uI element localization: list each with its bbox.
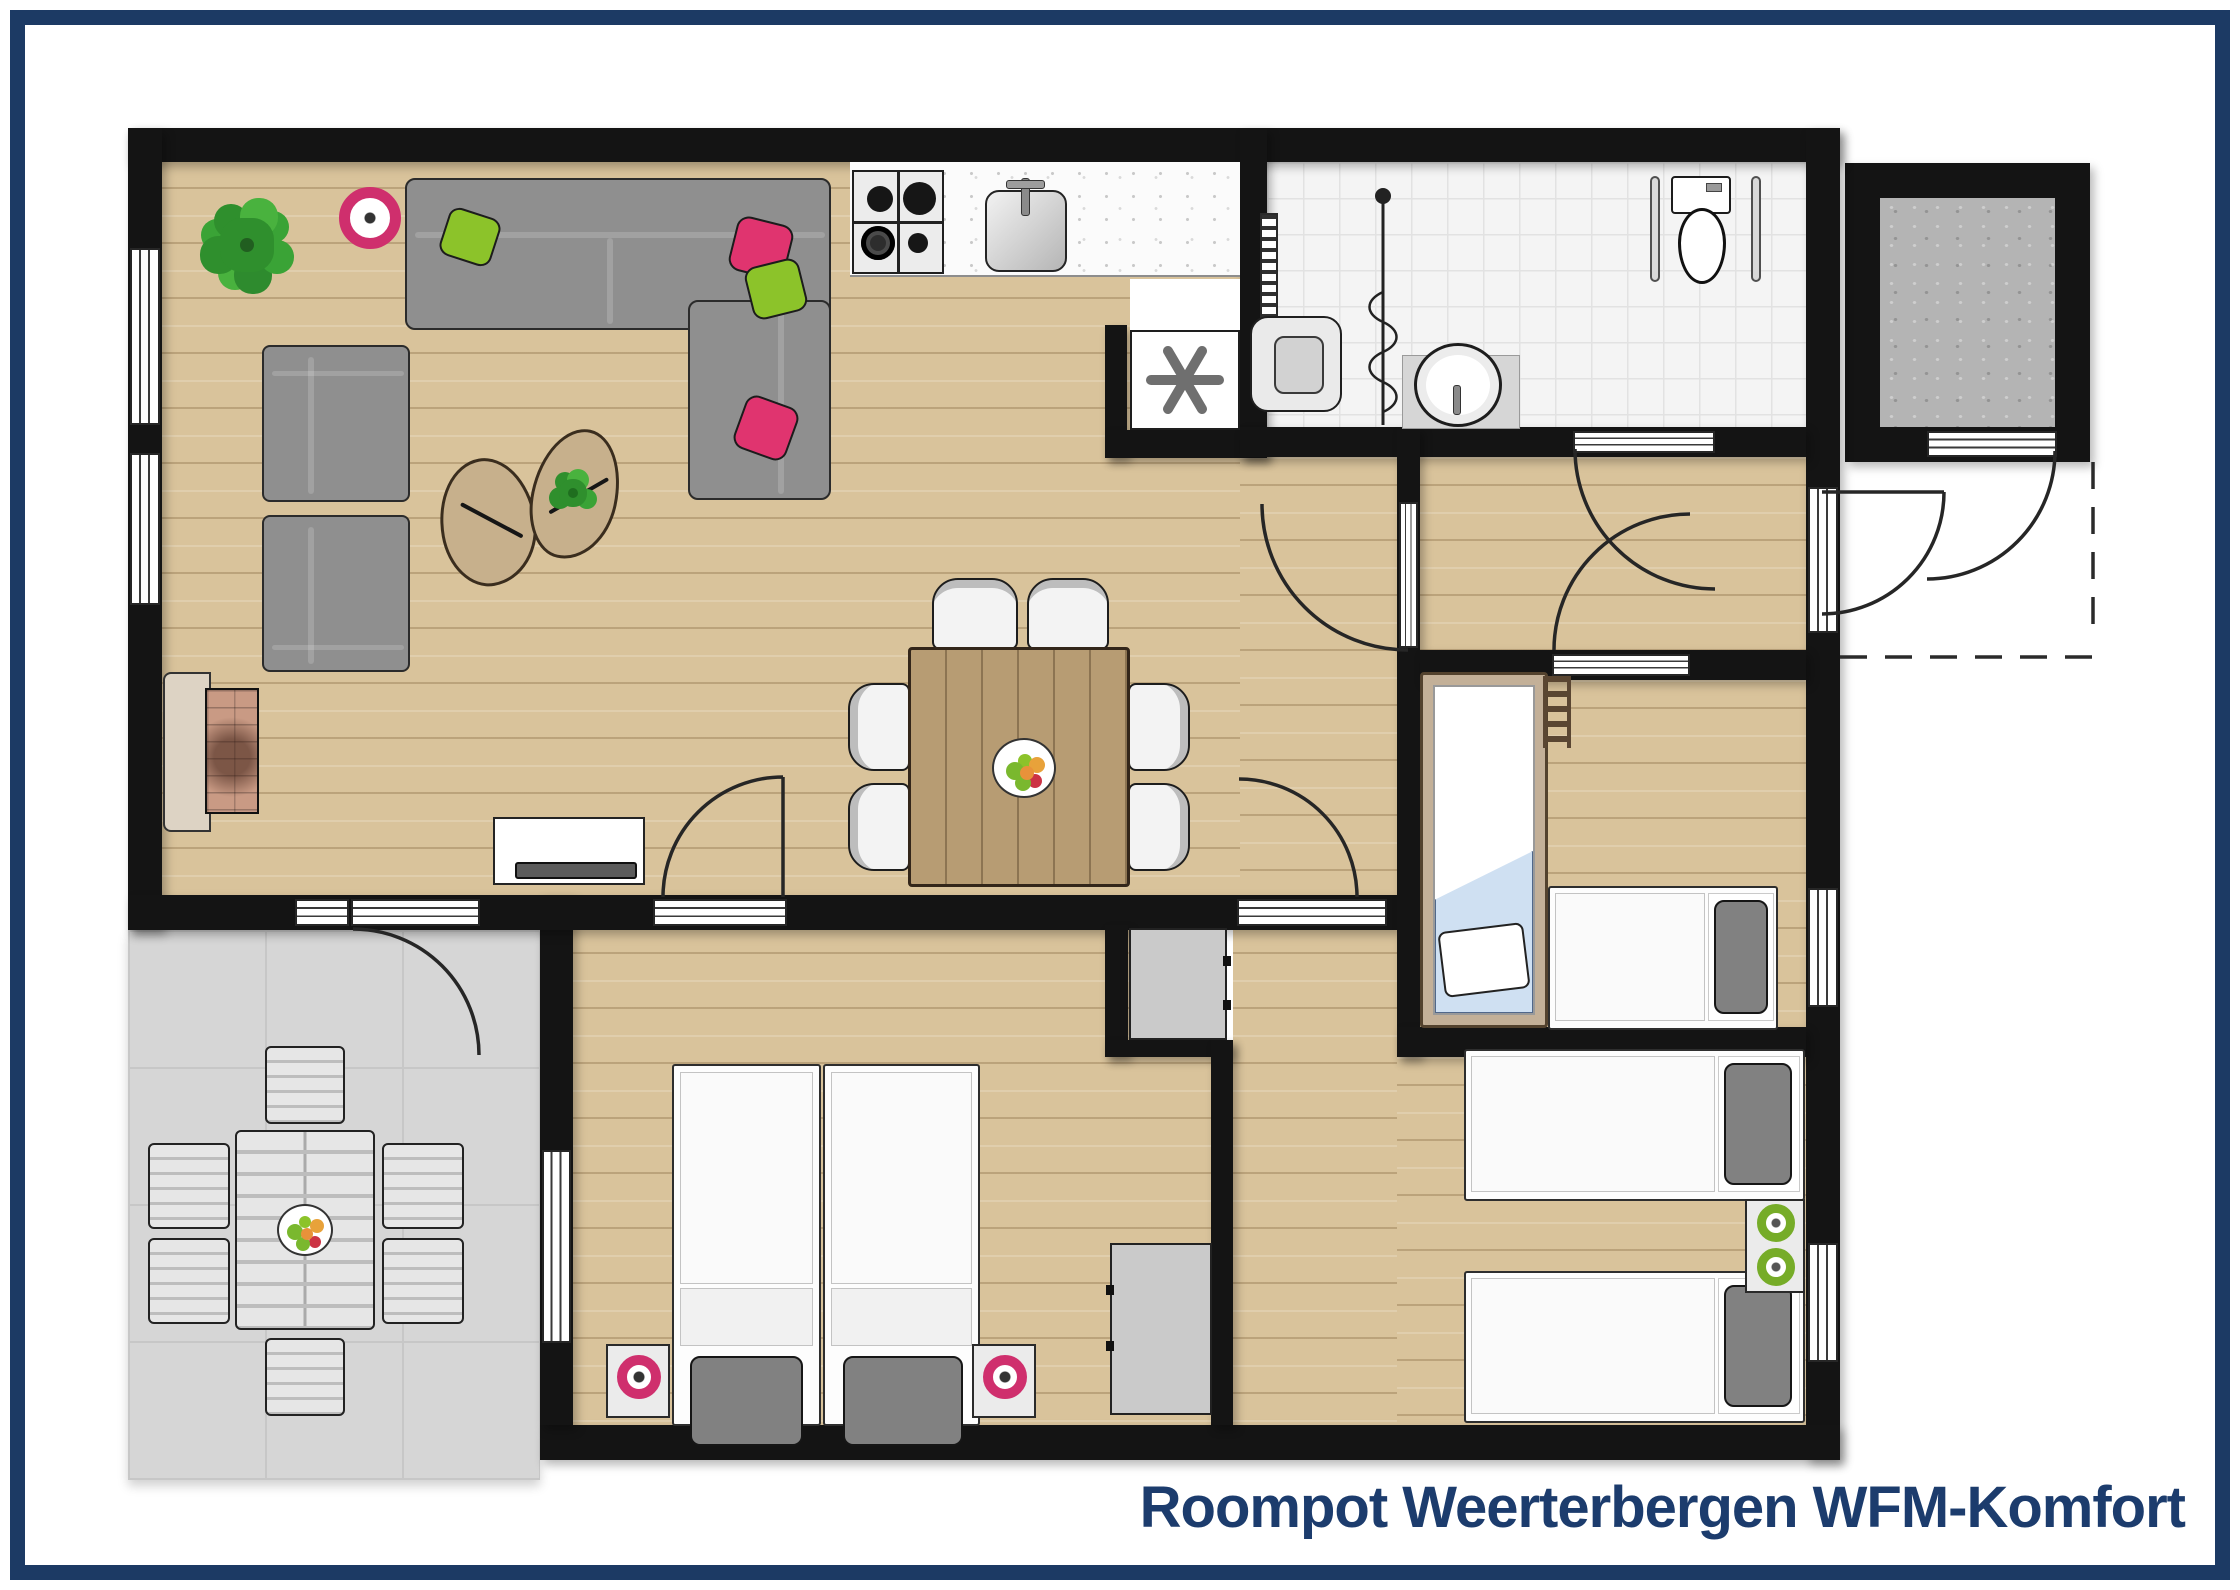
page-border-frame (10, 10, 2230, 1580)
floor-plan-page: Roompot Weerterbergen WFM-Komfort (0, 0, 2240, 1590)
